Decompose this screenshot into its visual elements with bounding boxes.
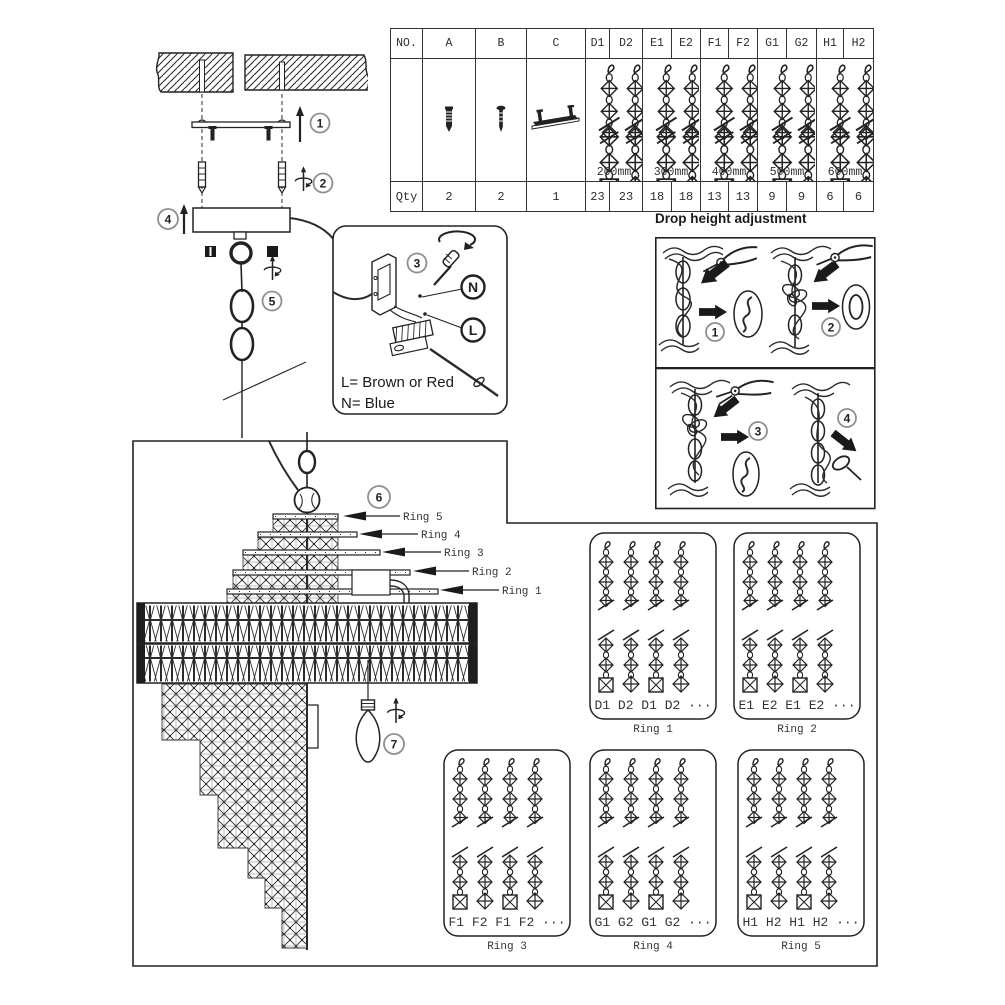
adjust-step-4-badge: 4 bbox=[838, 409, 856, 427]
alignment-dashed-line bbox=[202, 94, 282, 208]
up-arrow bbox=[180, 204, 188, 234]
table-header-no: NO. bbox=[391, 29, 422, 58]
hanging-chain bbox=[231, 263, 253, 438]
qty-label-cell: Qty bbox=[391, 181, 422, 211]
rotate-icon bbox=[387, 697, 404, 723]
svg-text:Ring 2: Ring 2 bbox=[472, 567, 512, 579]
qty-cell: 2 bbox=[475, 181, 526, 211]
ball-finial bbox=[295, 488, 320, 513]
mounting-bar-icon bbox=[530, 105, 582, 135]
bracket-part-cell bbox=[526, 58, 585, 181]
wiring-detail-box: 3 N L L= Brown or Red N= Blue bbox=[330, 222, 512, 418]
sequence-label: D1 D2 D1 D2 ··· bbox=[594, 698, 711, 713]
length-label: 300mm bbox=[654, 166, 689, 179]
table-cell-empty bbox=[391, 58, 422, 181]
svg-text:2: 2 bbox=[320, 177, 327, 191]
strand-pair-h: 600mm bbox=[816, 58, 873, 181]
step-5-badge: 5 bbox=[263, 292, 282, 311]
mounting-plate bbox=[372, 254, 396, 315]
adjust-step-2-badge: 2 bbox=[822, 318, 840, 336]
instruction-sheet: NO. A B C D1 D2 E1 E2 F1 F2 G1 G2 H1 H2 bbox=[0, 0, 1005, 1005]
qty-cell: 13 bbox=[728, 181, 757, 211]
strand-pair-d: 200mm bbox=[585, 58, 642, 181]
strand-pair-g: 500mm bbox=[757, 58, 816, 181]
table-header-e2: E2 bbox=[671, 29, 700, 58]
wall-anchor bbox=[199, 162, 286, 193]
up-arrow bbox=[296, 106, 304, 142]
table-header-e1: E1 bbox=[642, 29, 671, 58]
svg-text:5: 5 bbox=[269, 295, 276, 309]
ring-box-caption: Ring 5 bbox=[736, 941, 866, 953]
table-header-b: B bbox=[475, 29, 526, 58]
sequence-label: H1 H2 H1 H2 ··· bbox=[742, 915, 859, 930]
closed-ring-badge bbox=[843, 285, 870, 329]
svg-text:Ring 5: Ring 5 bbox=[403, 512, 443, 524]
svg-text:L: L bbox=[469, 322, 478, 338]
step-6-badge: 6 bbox=[368, 486, 390, 508]
svg-text:1: 1 bbox=[712, 326, 719, 340]
step-3-badge: 3 bbox=[408, 254, 427, 273]
ring-3-tier bbox=[243, 550, 380, 572]
ceiling-right bbox=[245, 55, 368, 90]
length-label: 500mm bbox=[769, 166, 804, 179]
terminal-screw bbox=[418, 294, 422, 298]
crystal-cascade bbox=[162, 684, 307, 948]
pin-marker bbox=[205, 246, 278, 257]
rotate-icon bbox=[295, 166, 311, 191]
ring-box-2: E1 E2 E1 E2 ··· bbox=[732, 531, 862, 721]
ring-box-3: F1 F2 F1 F2 ··· bbox=[442, 748, 572, 938]
svg-text:Ring 3: Ring 3 bbox=[444, 548, 484, 560]
rotate-icon bbox=[264, 255, 280, 280]
table-header-f1: F1 bbox=[700, 29, 728, 58]
qty-cell: 13 bbox=[700, 181, 728, 211]
qty-cell: 6 bbox=[816, 181, 843, 211]
svg-text:4: 4 bbox=[844, 412, 851, 426]
crystal-drum bbox=[137, 603, 477, 683]
qty-cell: 23 bbox=[609, 181, 642, 211]
ceiling-left bbox=[157, 53, 233, 92]
length-label: 200mm bbox=[596, 166, 631, 179]
qty-cell: 18 bbox=[671, 181, 700, 211]
diagonal-guide-line bbox=[223, 362, 306, 400]
step-1-badge: 1 bbox=[311, 114, 330, 133]
canopy bbox=[193, 208, 290, 239]
drop-height-title: Drop height adjustment bbox=[655, 211, 895, 226]
table-header-a: A bbox=[422, 29, 475, 58]
adjustment-panel-top bbox=[656, 238, 875, 368]
qty-cell: 18 bbox=[642, 181, 671, 211]
svg-text:N: N bbox=[468, 279, 478, 295]
power-cable bbox=[269, 441, 298, 490]
qty-cell: 2 bbox=[422, 181, 475, 211]
step-4-badge: 4 bbox=[158, 209, 178, 229]
parts-table: NO. A B C D1 D2 E1 E2 F1 F2 G1 G2 H1 H2 bbox=[390, 28, 874, 212]
table-header-h1: H1 bbox=[816, 29, 843, 58]
step-7-badge: 7 bbox=[384, 734, 404, 754]
svg-text:Ring 4: Ring 4 bbox=[421, 530, 461, 542]
table-header-h2: H2 bbox=[843, 29, 873, 58]
l-wire-legend: L= Brown or Red bbox=[341, 374, 454, 391]
n-wire-legend: N= Blue bbox=[341, 395, 395, 412]
sequence-label: G1 G2 G1 G2 ··· bbox=[594, 915, 711, 930]
svg-text:7: 7 bbox=[391, 738, 398, 752]
step-2-badge: 2 bbox=[314, 174, 333, 193]
ring-box-1: D1 D2 D1 D2 ··· bbox=[588, 531, 718, 721]
sequence-label: E1 E2 E1 E2 ··· bbox=[738, 698, 855, 713]
table-header-g2: G2 bbox=[786, 29, 816, 58]
ring-5-pointer: Ring 5 bbox=[343, 512, 443, 525]
ring-box-caption: Ring 2 bbox=[732, 724, 862, 736]
ring-3-pointer: Ring 3 bbox=[382, 548, 484, 561]
table-header-g1: G1 bbox=[757, 29, 786, 58]
anchor-part-cell bbox=[422, 58, 475, 181]
wall-anchor-icon bbox=[439, 104, 459, 136]
sequence-label: F1 F2 F1 F2 ··· bbox=[448, 915, 565, 930]
ring-1-pointer: Ring 1 bbox=[440, 586, 542, 599]
qty-cell: 9 bbox=[786, 181, 816, 211]
svg-text:3: 3 bbox=[414, 257, 421, 271]
strand-pair-e: 300mm bbox=[642, 58, 700, 181]
ring-1-tier bbox=[227, 589, 438, 603]
table-header-d2: D2 bbox=[609, 29, 642, 58]
ring-box-caption: Ring 4 bbox=[588, 941, 718, 953]
terminal-screw bbox=[423, 312, 427, 316]
table-header-f2: F2 bbox=[728, 29, 757, 58]
ring-box-caption: Ring 1 bbox=[588, 724, 718, 736]
table-header-d1: D1 bbox=[585, 29, 609, 58]
adjust-step-1-badge: 1 bbox=[706, 323, 724, 341]
side-bracket bbox=[307, 705, 318, 748]
qty-cell: 1 bbox=[526, 181, 585, 211]
mounting-bracket bbox=[192, 120, 290, 141]
ring-box-5: H1 H2 H1 H2 ··· bbox=[736, 748, 866, 938]
length-label: 400mm bbox=[711, 166, 746, 179]
screw-part-cell bbox=[475, 58, 526, 181]
svg-text:2: 2 bbox=[828, 321, 835, 335]
screw-icon bbox=[493, 104, 509, 136]
length-label: 600mm bbox=[827, 166, 862, 179]
hanging-loop bbox=[231, 243, 251, 263]
svg-text:4: 4 bbox=[165, 213, 172, 227]
svg-text:Ring 1: Ring 1 bbox=[502, 586, 542, 598]
strand-pair-f: 400mm bbox=[700, 58, 757, 181]
ring-box-4: G1 G2 G1 G2 ··· bbox=[588, 748, 718, 938]
svg-text:1: 1 bbox=[317, 117, 324, 131]
qty-cell: 9 bbox=[757, 181, 786, 211]
ring-2-pointer: Ring 2 bbox=[413, 567, 512, 580]
ring-4-pointer: Ring 4 bbox=[359, 530, 461, 543]
svg-text:6: 6 bbox=[376, 491, 383, 505]
table-header-c: C bbox=[526, 29, 585, 58]
qty-cell: 6 bbox=[843, 181, 873, 211]
ring-box-caption: Ring 3 bbox=[442, 941, 572, 953]
qty-cell: 23 bbox=[585, 181, 609, 211]
